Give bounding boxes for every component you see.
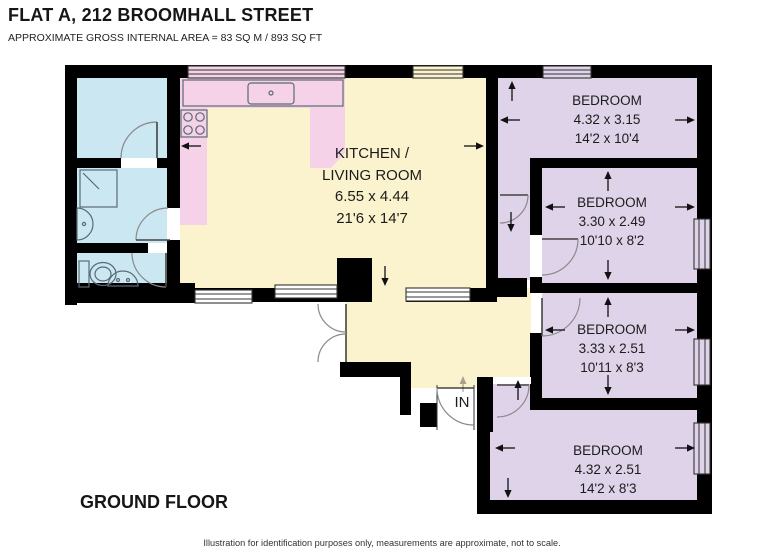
- courtyard-french-doors: [318, 304, 346, 362]
- bedroom-1-nook-floor: [497, 156, 530, 280]
- room-dim-imperial: 21'6 x 14'7: [292, 208, 452, 230]
- room-name: KITCHEN /: [292, 143, 452, 165]
- bedroom-1-window: [543, 66, 591, 78]
- hall-passage-opening: [372, 286, 406, 304]
- disclaimer-text: Illustration for identification purposes…: [182, 538, 582, 548]
- bedroom-2-label: BEDROOM 3.30 x 2.49 10'10 x 8'2: [532, 193, 692, 250]
- entrance-label: IN: [445, 394, 479, 411]
- room-name: BEDROOM: [532, 193, 692, 212]
- room-dim-metric: 3.33 x 2.51: [532, 339, 692, 358]
- floor-label: GROUND FLOOR: [80, 492, 228, 513]
- bedroom-4-window: [694, 423, 710, 474]
- room-name: BEDROOM: [527, 91, 687, 110]
- room-dim-imperial: 14'2 x 10'4: [527, 129, 687, 148]
- room-name: BEDROOM: [532, 320, 692, 339]
- room-dim-imperial: 14'2 x 8'3: [528, 479, 688, 498]
- kitchen-living-label: KITCHEN / LIVING ROOM 6.55 x 4.44 21'6 x…: [292, 143, 452, 229]
- bedroom-2-window: [694, 219, 710, 269]
- room-dim-imperial: 10'11 x 8'3: [532, 358, 692, 377]
- entrance-recess-floor: [411, 362, 477, 388]
- room-name: BEDROOM: [528, 441, 688, 460]
- room-dim-imperial: 10'10 x 8'2: [532, 231, 692, 250]
- room-dim-metric: 3.30 x 2.49: [532, 212, 692, 231]
- living-room-window-bottom-2: [275, 285, 337, 298]
- room-dim-metric: 4.32 x 3.15: [527, 110, 687, 129]
- kitchen-window: [188, 66, 345, 78]
- living-room-window-top: [413, 66, 463, 78]
- room-dim-metric: 4.32 x 2.51: [528, 460, 688, 479]
- bedroom-4-label: BEDROOM 4.32 x 2.51 14'2 x 8'3: [528, 441, 688, 498]
- store-room-floor: [77, 77, 167, 158]
- living-room-window-bottom-1: [195, 290, 252, 303]
- bedroom-3-window: [694, 339, 710, 385]
- hallway-internal-window: [406, 288, 470, 301]
- room-name: LIVING ROOM: [292, 165, 452, 187]
- room-dim-metric: 6.55 x 4.44: [292, 186, 452, 208]
- floorplan-page: FLAT A, 212 BROOMHALL STREET APPROXIMATE…: [0, 0, 768, 557]
- bedroom-1-label: BEDROOM 4.32 x 3.15 14'2 x 10'4: [527, 91, 687, 148]
- bedroom-4-door-gap: [493, 377, 531, 384]
- bedroom-3-label: BEDROOM 3.33 x 2.51 10'11 x 8'3: [532, 320, 692, 377]
